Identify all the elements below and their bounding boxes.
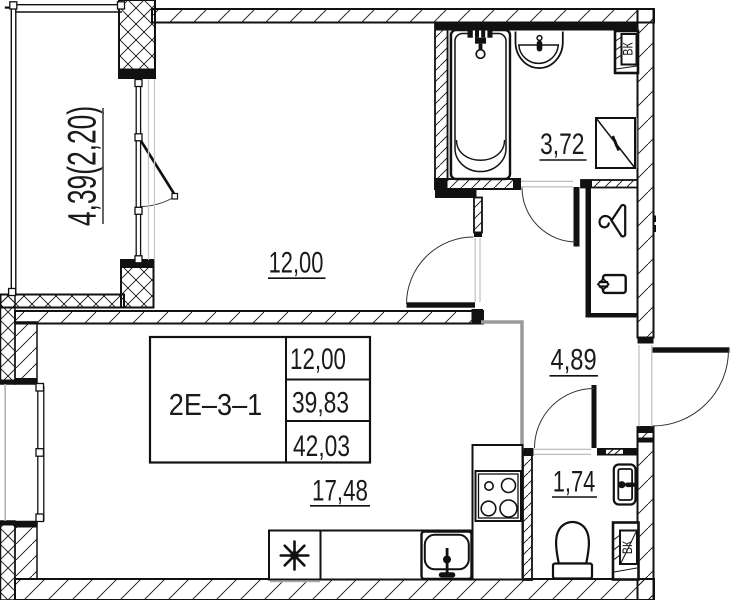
svg-text:1,74: 1,74 bbox=[553, 464, 596, 498]
svg-text:ВК: ВК bbox=[620, 42, 636, 55]
svg-text:12,00: 12,00 bbox=[290, 342, 346, 376]
svg-text:39,83: 39,83 bbox=[292, 385, 349, 419]
svg-text:4,89: 4,89 bbox=[551, 343, 597, 376]
svg-text:3,72: 3,72 bbox=[540, 127, 584, 161]
svg-text:12,00: 12,00 bbox=[269, 245, 324, 279]
svg-text:17,48: 17,48 bbox=[312, 473, 368, 507]
svg-text:42,03: 42,03 bbox=[293, 429, 350, 463]
svg-text:2Е–3–1: 2Е–3–1 bbox=[169, 389, 263, 423]
svg-text:ВК: ВК bbox=[620, 541, 636, 554]
svg-text:4,39(2,20): 4,39(2,20) bbox=[60, 106, 105, 226]
